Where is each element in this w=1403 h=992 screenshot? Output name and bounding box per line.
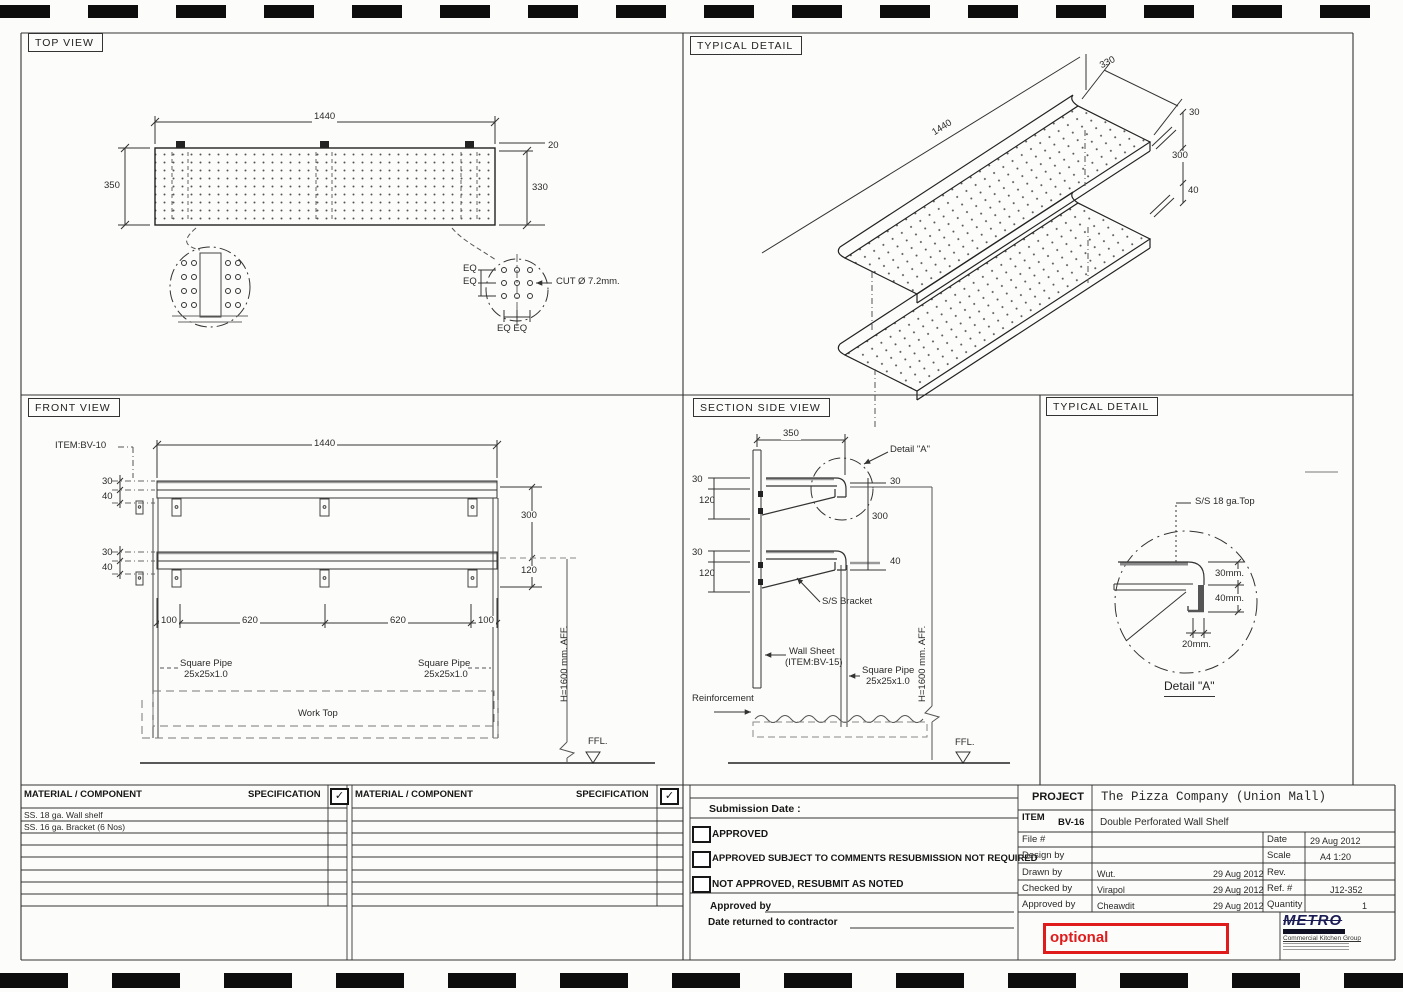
- project-name: The Pizza Company (Union Mall): [1101, 790, 1326, 804]
- front-dim-620b: 620: [388, 616, 408, 627]
- top-view-title: TOP VIEW: [28, 33, 103, 52]
- metro-logo-bar: [1283, 929, 1345, 934]
- front-dim-100r: 100: [476, 616, 496, 627]
- front-dim-30a: 30: [102, 477, 113, 488]
- metro-logo: METRO Commercial Kitchen Group: [1283, 914, 1393, 958]
- front-dim-length: 1440: [312, 439, 337, 450]
- materials1-header-spec: SPECIFICATION: [248, 790, 321, 801]
- approved-by-label: Approved by: [1022, 900, 1075, 911]
- section-dim-30a: 30: [692, 475, 703, 486]
- iso-detail-title: TYPICAL DETAIL: [690, 36, 802, 55]
- date-value: 29 Aug 2012: [1310, 836, 1361, 846]
- detail-callout: S/S 18 ga.Top: [1195, 497, 1255, 508]
- top-view-drawing: [118, 116, 552, 328]
- checked-date: 29 Aug 2012: [1213, 885, 1264, 895]
- section-dim-120b: 120: [699, 569, 715, 580]
- detail-dim-30: 30mm.: [1213, 569, 1246, 580]
- item-label: ITEM: [1022, 813, 1045, 824]
- section-height-label: H=1600 mm. AFF.: [918, 626, 929, 702]
- top-dim-edge: 20: [548, 141, 559, 152]
- front-dim-120: 120: [519, 566, 539, 577]
- section-dim-30b: 30: [692, 548, 703, 559]
- front-view-drawing: [112, 440, 655, 763]
- rev-label: Rev.: [1267, 868, 1286, 879]
- metro-logo-text: METRO: [1283, 914, 1393, 928]
- ref-value: J12-352: [1330, 885, 1363, 895]
- drawing-sheet: TOP VIEW TYPICAL DETAIL FRONT VIEW SECTI…: [0, 0, 1403, 992]
- section-dim-350: 350: [781, 429, 801, 440]
- drawn-date: 29 Aug 2012: [1213, 869, 1264, 879]
- submission-option-not-approved: NOT APPROVED, RESUBMIT AS NOTED: [712, 879, 904, 891]
- iso-dim-gap: 300: [1170, 151, 1190, 162]
- materials2-header-spec: SPECIFICATION: [576, 790, 649, 801]
- eq-pair-label: EQ EQ: [497, 324, 527, 335]
- materials2-check-box: ✓: [660, 788, 679, 805]
- materials2-header-component: MATERIAL / COMPONENT: [355, 790, 473, 801]
- cut-callout: CUT Ø 7.2mm.: [556, 277, 620, 288]
- front-dim-40b: 40: [102, 563, 113, 574]
- project-label: PROJECT: [1032, 791, 1084, 804]
- scale-value: A4 1:20: [1320, 852, 1351, 862]
- metro-logo-fineprint: [1283, 943, 1349, 952]
- top-dim-inner: 330: [532, 183, 548, 194]
- materials1-check-box: ✓: [330, 788, 349, 805]
- front-view-title: FRONT VIEW: [28, 398, 120, 417]
- detail-dim-40: 40mm.: [1213, 594, 1246, 605]
- front-dim-100l: 100: [159, 616, 179, 627]
- front-height-label: H=1600 mm. AFF.: [560, 626, 571, 702]
- front-worktop-label: Work Top: [298, 709, 338, 720]
- checked-by-label: Checked by: [1022, 884, 1072, 895]
- front-dim-gap: 300: [519, 511, 539, 522]
- date-label: Date: [1267, 835, 1287, 846]
- approved-date: 29 Aug 2012: [1213, 901, 1264, 911]
- item-code: BV-16: [1058, 818, 1084, 829]
- detail-dim-20: 20mm.: [1182, 640, 1211, 651]
- detail-view-title: TYPICAL DETAIL: [1046, 397, 1158, 416]
- item-description: Double Perforated Wall Shelf: [1100, 817, 1229, 829]
- quantity-label: Quantity: [1267, 900, 1302, 911]
- approved-by-name: Cheawdit: [1097, 901, 1135, 911]
- eq-label-2: EQ: [463, 277, 477, 288]
- section-detail-ref: Detail "A": [890, 445, 930, 456]
- file-label: File #: [1022, 835, 1045, 846]
- drawn-by-label: Drawn by: [1022, 868, 1062, 879]
- submission-option-approved: APPROVED: [712, 829, 768, 841]
- iso-dim-lip: 30: [1189, 108, 1200, 119]
- metro-logo-subtitle: Commercial Kitchen Group: [1283, 935, 1393, 942]
- drawn-by-name: Wut.: [1097, 869, 1115, 879]
- front-pipe-right-2: 25x25x1.0: [424, 670, 468, 681]
- submission-option-comments: APPROVED SUBJECT TO COMMENTS RESUBMISSIO…: [712, 854, 1038, 865]
- scale-label: Scale: [1267, 851, 1291, 862]
- front-dim-40a: 40: [102, 492, 113, 503]
- checked-by-name: Virapol: [1097, 885, 1125, 895]
- quantity-value: 1: [1362, 901, 1367, 911]
- isometric-detail-drawing: [762, 54, 1186, 427]
- materials1-row-1: SS. 18 ga. Wall shelf: [24, 811, 103, 821]
- ref-label: Ref. #: [1267, 884, 1292, 895]
- submission-date-returned-label: Date returned to contractor: [708, 917, 837, 929]
- front-pipe-left-2: 25x25x1.0: [184, 670, 228, 681]
- design-by-label: Design by: [1022, 851, 1064, 862]
- iso-dim-lower: 40: [1188, 186, 1199, 197]
- materials1-row-2: SS. 16 ga. Bracket (6 Nos): [24, 823, 125, 833]
- not-approved-checkbox: [692, 876, 711, 893]
- section-bracket-label: S/S Bracket: [822, 597, 872, 608]
- optional-annotation: optional: [1043, 923, 1229, 954]
- front-ffl-label: FFL.: [588, 737, 608, 748]
- section-reinforcement-label: Reinforcement: [692, 694, 754, 705]
- section-dim-120a: 120: [699, 496, 715, 507]
- materials1-header-component: MATERIAL / COMPONENT: [24, 790, 142, 801]
- detail-caption: Detail "A": [1164, 680, 1215, 697]
- section-ffl-label: FFL.: [955, 738, 975, 749]
- top-dim-depth: 350: [104, 181, 120, 192]
- submission-approved-by-label: Approved by: [710, 901, 771, 913]
- section-wallsheet-label-2: (ITEM:BV-15): [785, 658, 843, 669]
- approved-checkbox: [692, 826, 711, 843]
- front-dim-620a: 620: [240, 616, 260, 627]
- section-dim-40: 40: [890, 557, 901, 568]
- section-view-title: SECTION SIDE VIEW: [693, 398, 830, 417]
- section-pipe-label-2: 25x25x1.0: [866, 677, 910, 688]
- section-dim-gap: 300: [870, 512, 890, 523]
- top-dim-length: 1440: [312, 112, 337, 123]
- eq-label-1: EQ: [463, 264, 477, 275]
- submission-date-label: Submission Date :: [709, 803, 801, 815]
- front-dim-30b: 30: [102, 548, 113, 559]
- front-item-callout: ITEM:BV-10: [55, 441, 106, 452]
- section-dim-30r: 30: [890, 477, 901, 488]
- approved-with-comments-checkbox: [692, 851, 711, 868]
